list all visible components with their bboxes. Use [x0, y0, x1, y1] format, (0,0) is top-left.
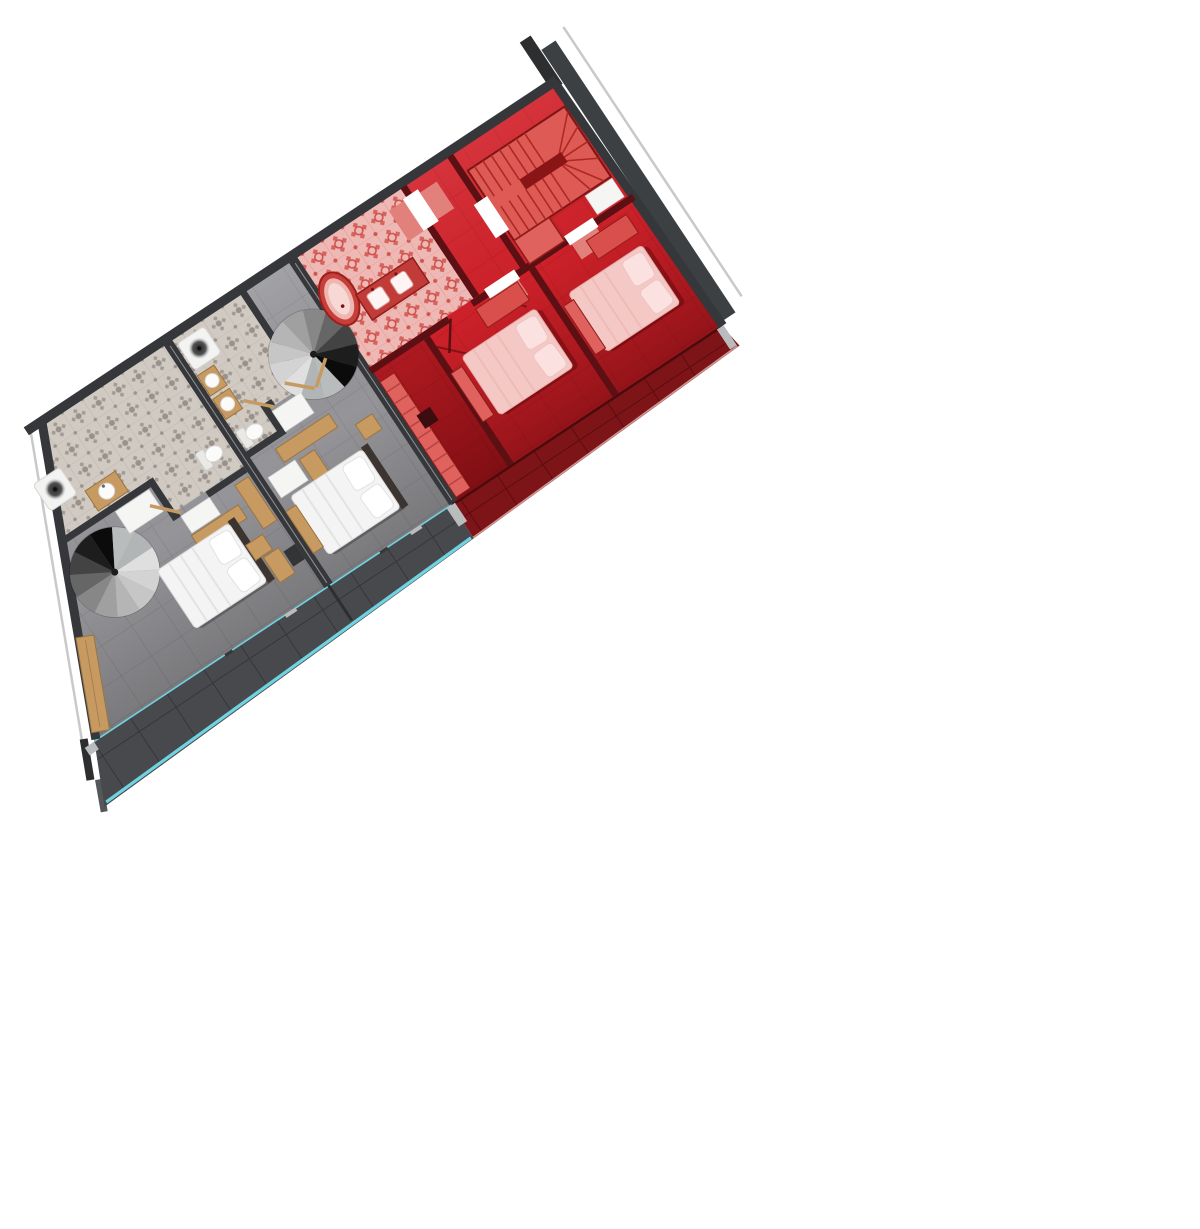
floor-plan-canvas	[0, 0, 1200, 1229]
building	[0, 18, 785, 812]
floor-plan-page	[0, 0, 1200, 1229]
